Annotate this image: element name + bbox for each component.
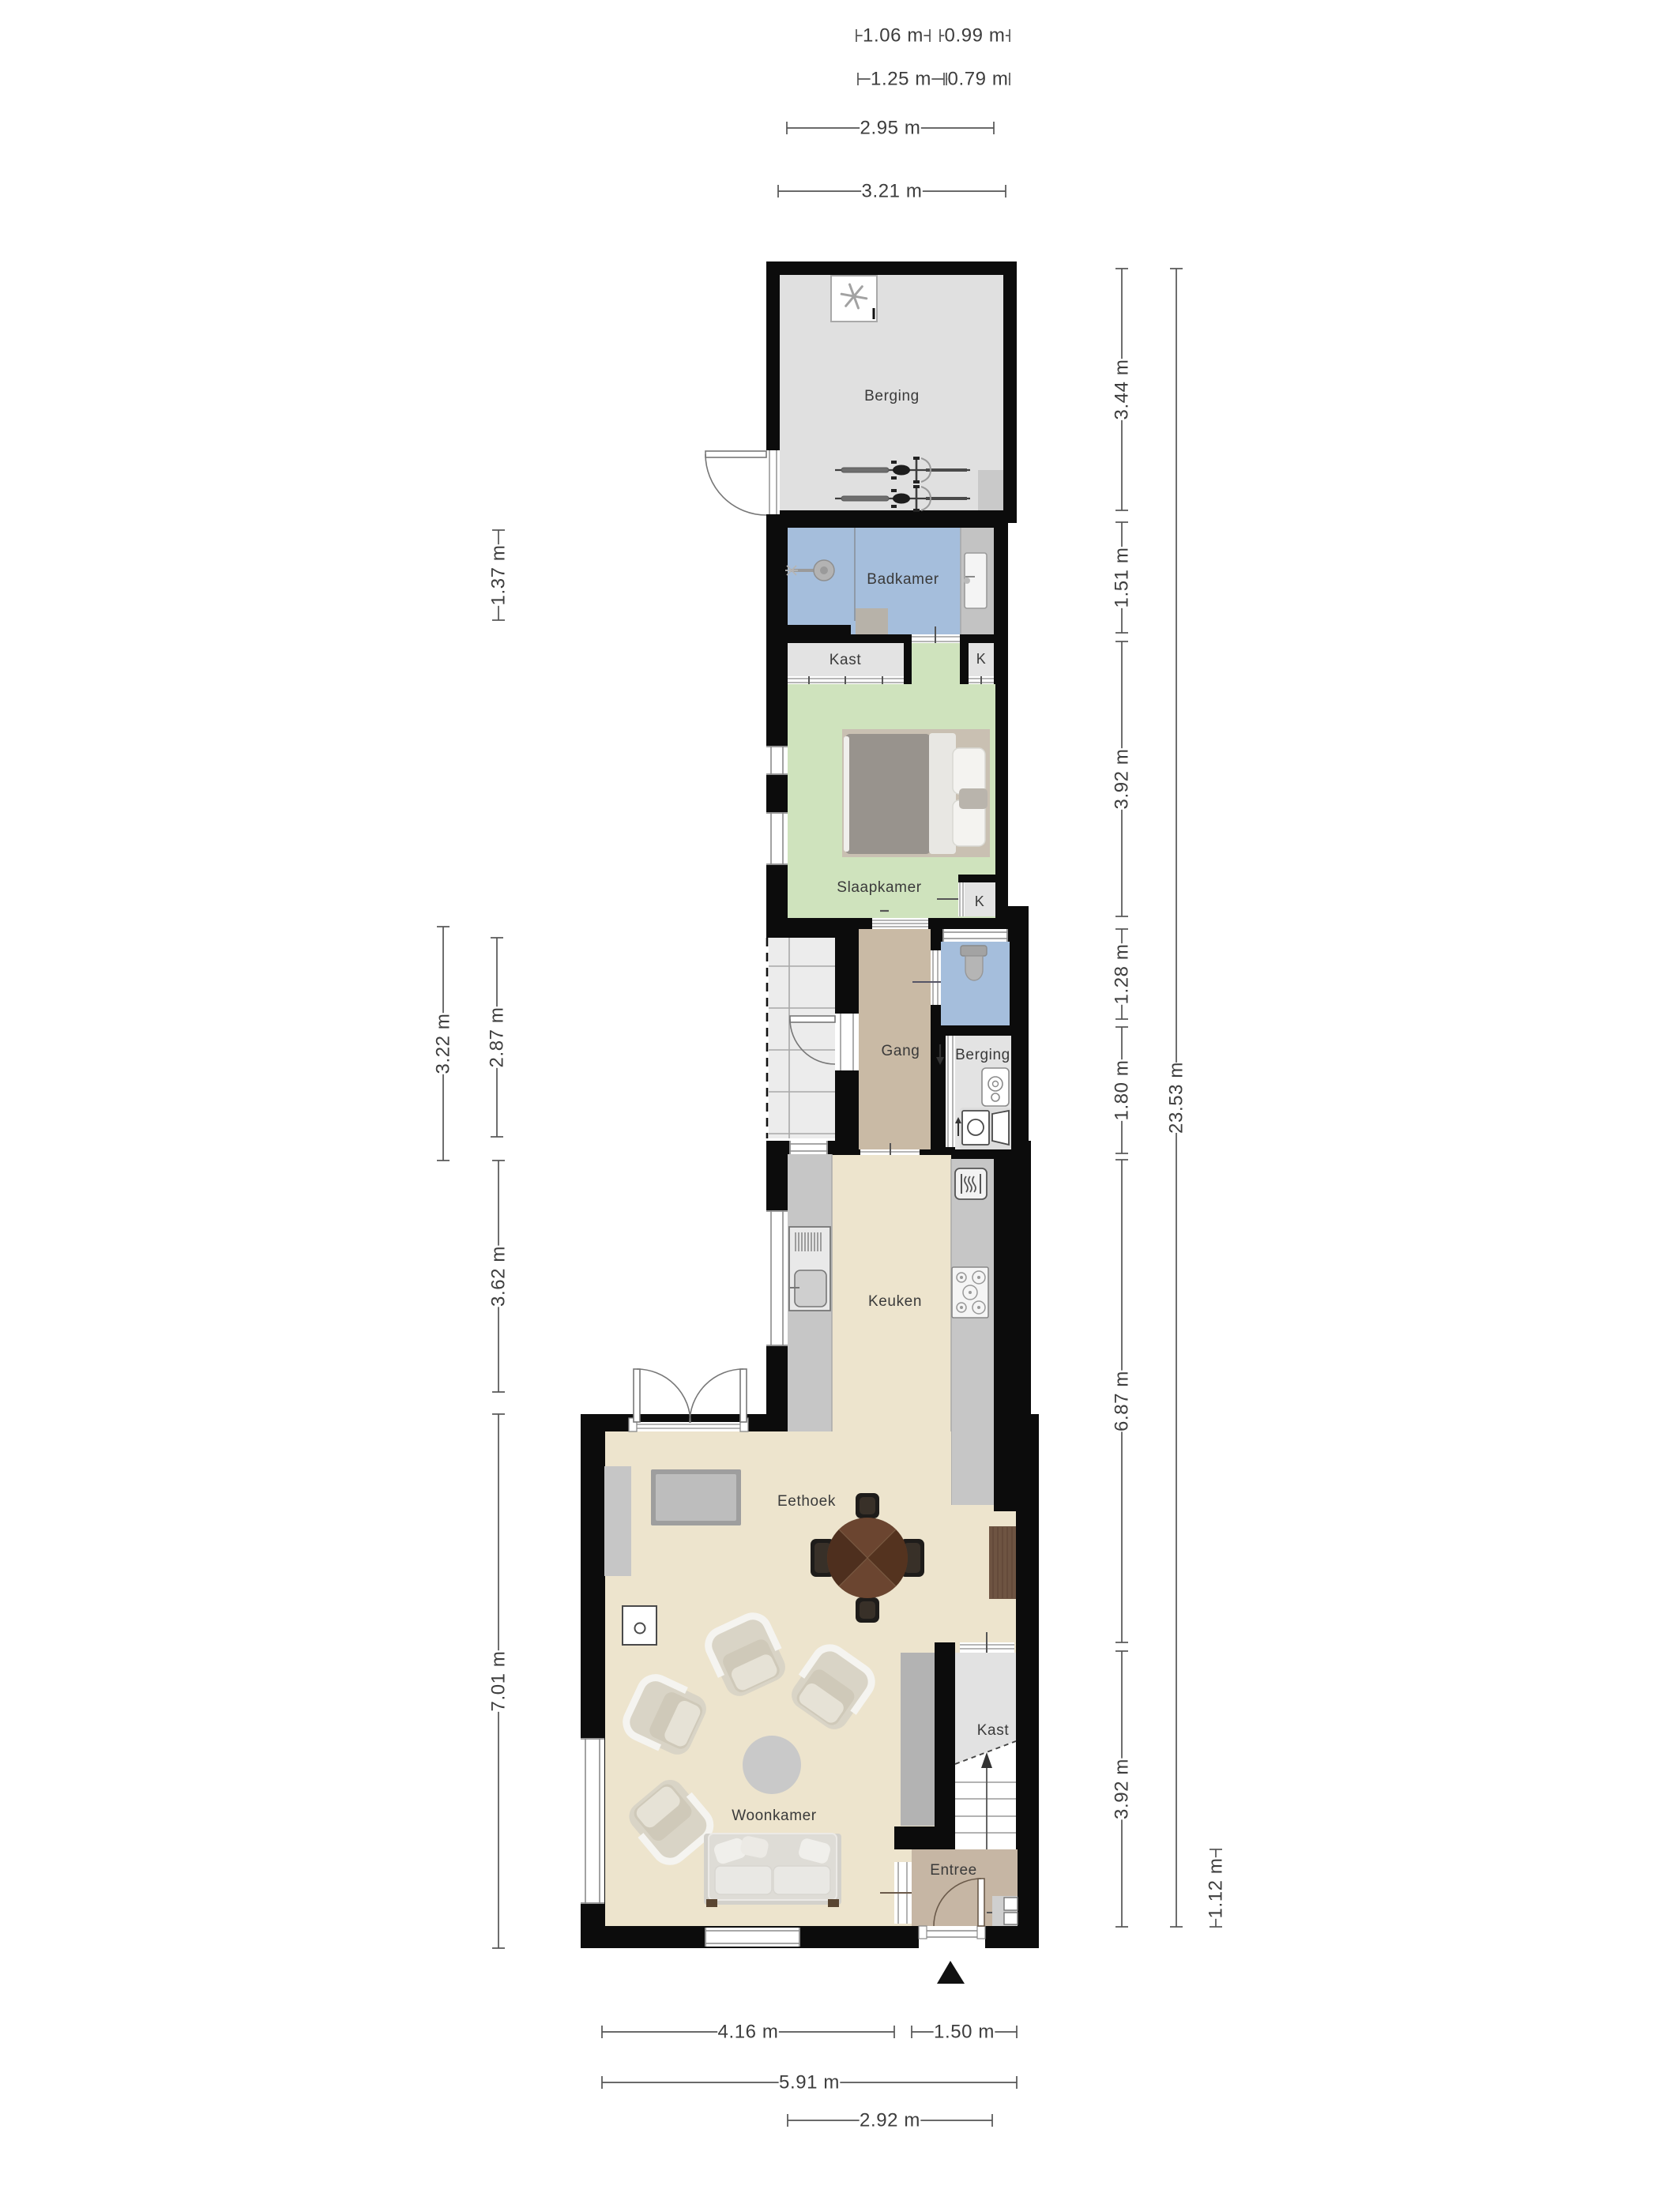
- svg-text:1.80 m: 1.80 m: [1112, 1060, 1133, 1121]
- svg-text:Badkamer: Badkamer: [867, 571, 939, 588]
- svg-text:2.92 m: 2.92 m: [860, 2110, 920, 2131]
- svg-text:23.53 m: 23.53 m: [1166, 1062, 1187, 1134]
- svg-text:3.21 m: 3.21 m: [862, 181, 923, 202]
- svg-text:1.50 m: 1.50 m: [934, 2022, 995, 2043]
- svg-text:Berging: Berging: [864, 388, 920, 404]
- svg-text:7.01 m: 7.01 m: [488, 1651, 510, 1712]
- svg-text:1.06 m: 1.06 m: [863, 25, 924, 47]
- svg-text:2.95 m: 2.95 m: [860, 118, 921, 139]
- svg-text:1.28 m: 1.28 m: [1112, 944, 1133, 1005]
- svg-text:Entree: Entree: [930, 1862, 977, 1879]
- svg-text:2.87 m: 2.87 m: [487, 1007, 508, 1068]
- svg-text:3.92 m: 3.92 m: [1112, 1759, 1133, 1819]
- svg-text:Eethoek: Eethoek: [777, 1493, 836, 1510]
- svg-text:0.99 m: 0.99 m: [945, 25, 1006, 47]
- svg-text:Kast: Kast: [977, 1722, 1010, 1739]
- svg-text:1.25 m: 1.25 m: [871, 69, 931, 90]
- svg-text:3.44 m: 3.44 m: [1112, 359, 1133, 420]
- svg-text:Berging: Berging: [955, 1047, 1010, 1063]
- svg-text:Gang: Gang: [882, 1043, 920, 1059]
- svg-text:Kast: Kast: [829, 652, 862, 668]
- svg-text:K: K: [975, 893, 985, 909]
- svg-text:3.62 m: 3.62 m: [488, 1246, 510, 1307]
- svg-text:K: K: [976, 651, 987, 667]
- svg-text:3.92 m: 3.92 m: [1112, 749, 1133, 810]
- svg-text:4.16 m: 4.16 m: [718, 2022, 779, 2043]
- svg-text:Woonkamer: Woonkamer: [732, 1808, 817, 1824]
- svg-text:Keuken: Keuken: [868, 1293, 922, 1310]
- svg-text:1.37 m: 1.37 m: [488, 545, 510, 606]
- svg-text:1.51 m: 1.51 m: [1112, 547, 1133, 608]
- svg-text:6.87 m: 6.87 m: [1112, 1371, 1133, 1431]
- svg-text:0.79 m: 0.79 m: [948, 69, 1009, 90]
- svg-text:5.91 m: 5.91 m: [779, 2072, 840, 2093]
- svg-text:1.12 m: 1.12 m: [1206, 1858, 1227, 1919]
- svg-text:3.22 m: 3.22 m: [433, 1014, 454, 1074]
- svg-text:Slaapkamer: Slaapkamer: [837, 879, 921, 896]
